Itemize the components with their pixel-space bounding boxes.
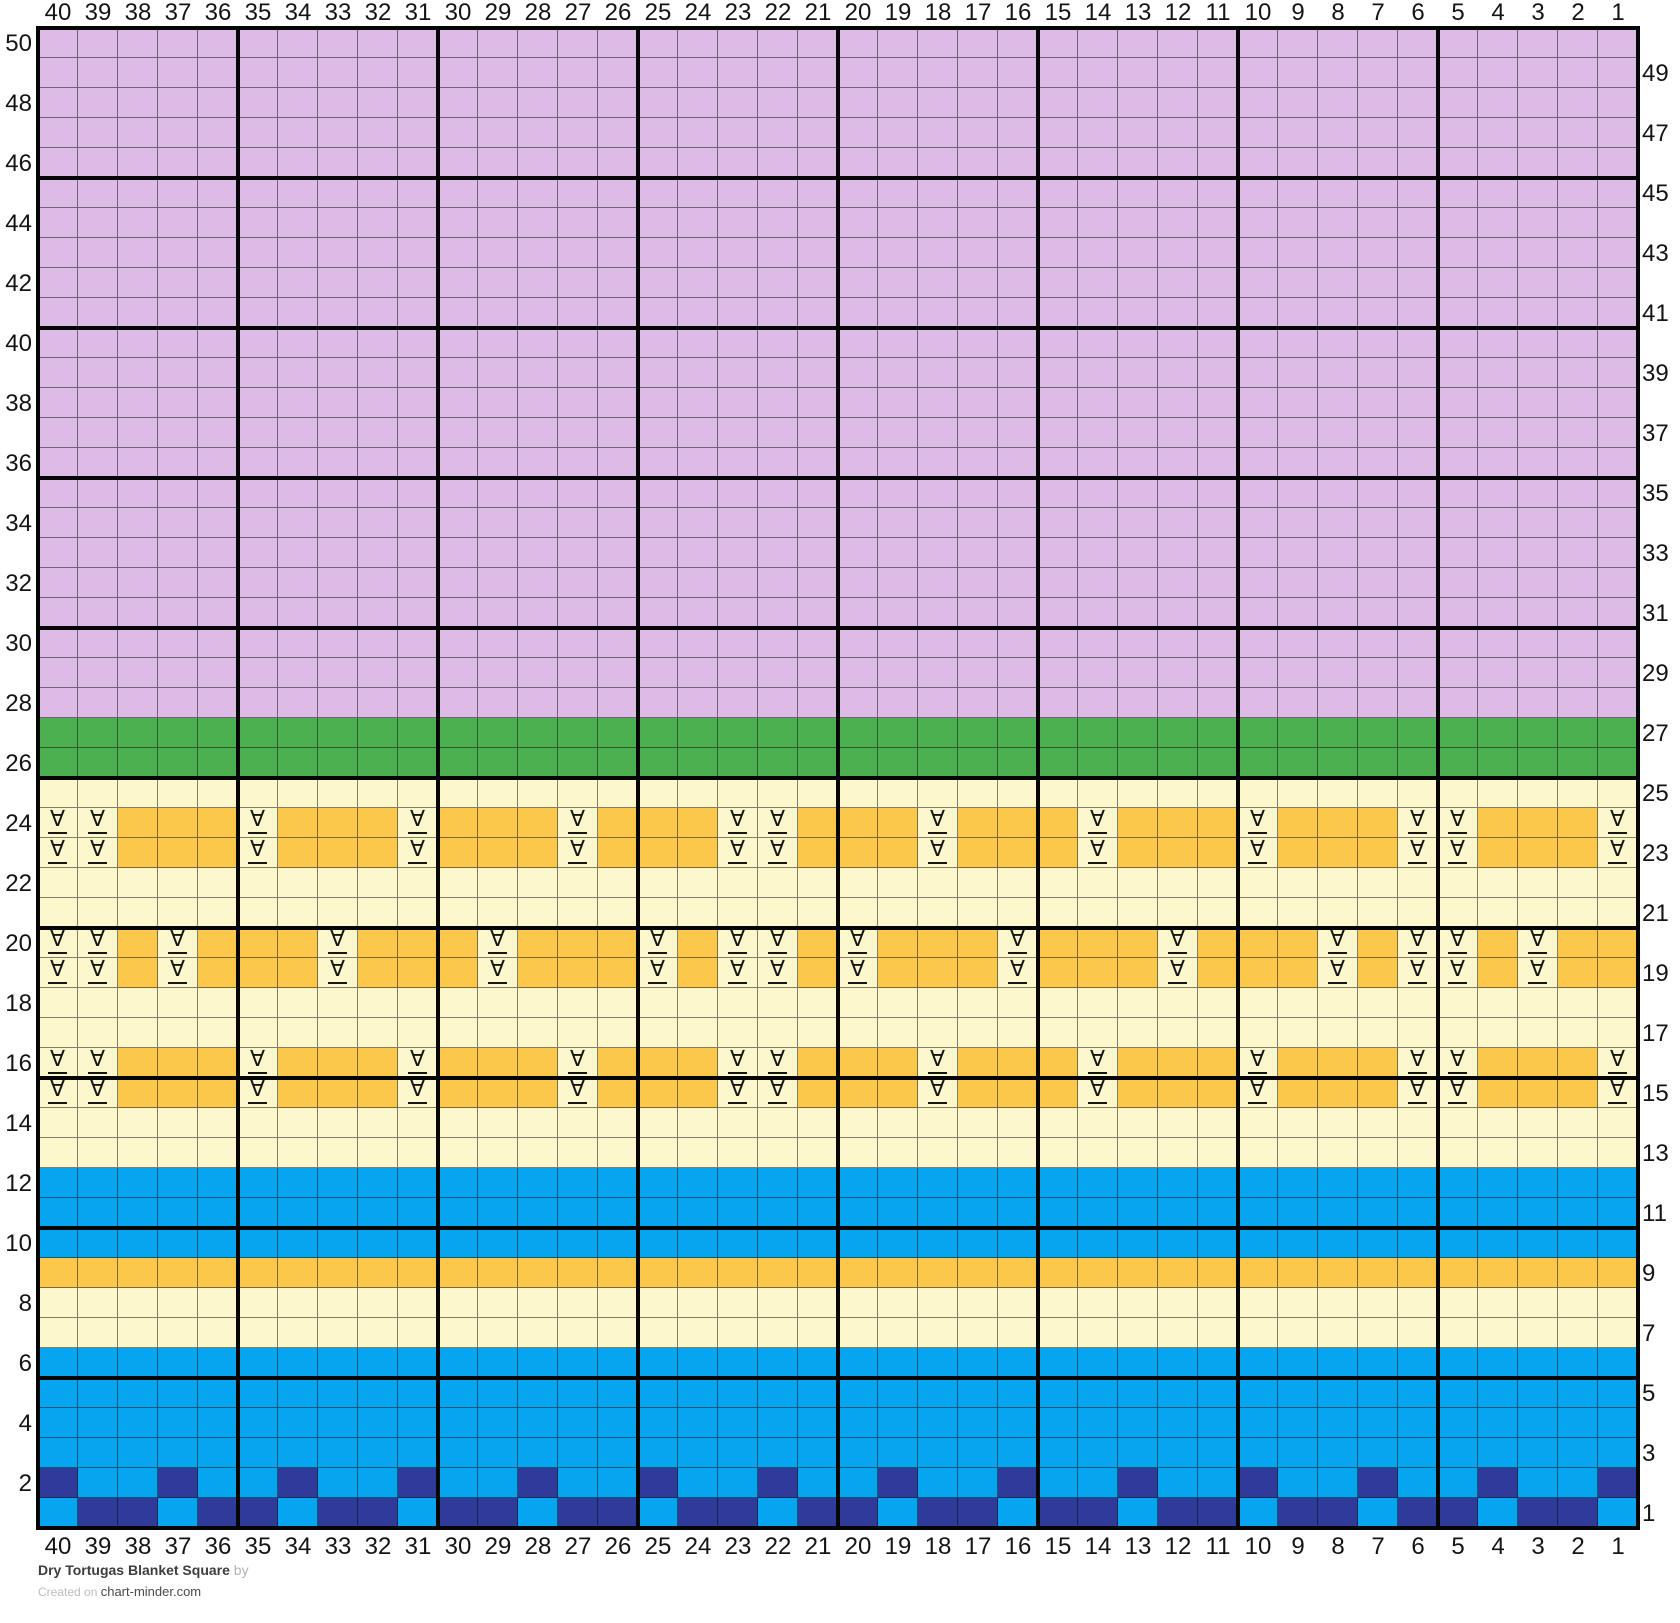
grid-cell[interactable]: [1478, 1018, 1518, 1048]
grid-cell[interactable]: [1438, 568, 1478, 598]
grid-cell[interactable]: [1158, 568, 1198, 598]
grid-cell[interactable]: [158, 778, 198, 808]
grid-cell[interactable]: [1078, 868, 1118, 898]
grid-cell[interactable]: [438, 898, 478, 928]
grid-cell[interactable]: [1118, 88, 1158, 118]
grid-cell[interactable]: [998, 1168, 1038, 1198]
grid-cell[interactable]: [798, 658, 838, 688]
grid-cell[interactable]: [78, 208, 118, 238]
grid-cell[interactable]: [438, 718, 478, 748]
grid-cell[interactable]: [1478, 688, 1518, 718]
grid-cell[interactable]: [918, 1498, 958, 1528]
grid-cell[interactable]: [798, 448, 838, 478]
grid-cell[interactable]: [1518, 868, 1558, 898]
grid-cell[interactable]: [1118, 418, 1158, 448]
grid-cell[interactable]: [118, 1468, 158, 1498]
grid-cell[interactable]: [558, 1318, 598, 1348]
grid-cell[interactable]: [1398, 478, 1438, 508]
grid-cell[interactable]: [638, 1498, 678, 1528]
grid-cell[interactable]: [1518, 328, 1558, 358]
grid-cell[interactable]: [1078, 598, 1118, 628]
grid-cell[interactable]: [118, 148, 158, 178]
grid-cell[interactable]: [1438, 1288, 1478, 1318]
grid-cell[interactable]: [1318, 508, 1358, 538]
grid-cell[interactable]: [318, 1228, 358, 1258]
grid-cell[interactable]: [958, 928, 998, 958]
grid-cell[interactable]: [158, 1168, 198, 1198]
grid-cell[interactable]: [1478, 1228, 1518, 1258]
grid-cell[interactable]: [678, 1198, 718, 1228]
grid-cell[interactable]: [278, 1288, 318, 1318]
grid-cell[interactable]: [1358, 178, 1398, 208]
grid-cell[interactable]: [678, 958, 718, 988]
grid-cell[interactable]: ∀: [1078, 808, 1118, 838]
grid-cell[interactable]: [1278, 1498, 1318, 1528]
grid-cell[interactable]: [278, 868, 318, 898]
grid-cell[interactable]: [1118, 1198, 1158, 1228]
grid-cell[interactable]: [998, 508, 1038, 538]
grid-cell[interactable]: [1478, 658, 1518, 688]
grid-cell[interactable]: [998, 1438, 1038, 1468]
grid-cell[interactable]: [1478, 1318, 1518, 1348]
grid-cell[interactable]: [278, 1348, 318, 1378]
grid-cell[interactable]: [1358, 1048, 1398, 1078]
grid-cell[interactable]: [318, 58, 358, 88]
grid-cell[interactable]: [1598, 1378, 1638, 1408]
grid-cell[interactable]: [1158, 1258, 1198, 1288]
grid-cell[interactable]: [198, 298, 238, 328]
grid-cell[interactable]: [998, 1408, 1038, 1438]
grid-cell[interactable]: [1238, 1288, 1278, 1318]
grid-cell[interactable]: [1198, 568, 1238, 598]
grid-cell[interactable]: [638, 568, 678, 598]
grid-cell[interactable]: [918, 538, 958, 568]
grid-cell[interactable]: [398, 238, 438, 268]
grid-cell[interactable]: [638, 718, 678, 748]
grid-cell[interactable]: [838, 1348, 878, 1378]
grid-cell[interactable]: [598, 1408, 638, 1438]
grid-cell[interactable]: [1278, 268, 1318, 298]
grid-cell[interactable]: [1518, 748, 1558, 778]
grid-cell[interactable]: [118, 1168, 158, 1198]
grid-cell[interactable]: [1198, 58, 1238, 88]
grid-cell[interactable]: [318, 1498, 358, 1528]
grid-cell[interactable]: [1398, 1348, 1438, 1378]
grid-cell[interactable]: [198, 1288, 238, 1318]
grid-cell[interactable]: [1358, 298, 1398, 328]
grid-cell[interactable]: [1478, 1348, 1518, 1378]
grid-cell[interactable]: [1478, 1378, 1518, 1408]
grid-cell[interactable]: [358, 658, 398, 688]
grid-cell[interactable]: [638, 208, 678, 238]
grid-cell[interactable]: ∀: [1238, 838, 1278, 868]
grid-cell[interactable]: ∀: [758, 838, 798, 868]
grid-cell[interactable]: [918, 1198, 958, 1228]
grid-cell[interactable]: [1198, 808, 1238, 838]
grid-cell[interactable]: [1478, 118, 1518, 148]
grid-cell[interactable]: [278, 418, 318, 448]
grid-cell[interactable]: [1518, 298, 1558, 328]
grid-cell[interactable]: [1398, 58, 1438, 88]
grid-cell[interactable]: [1238, 1438, 1278, 1468]
grid-cell[interactable]: [278, 238, 318, 268]
grid-cell[interactable]: [838, 1498, 878, 1528]
grid-cell[interactable]: [1398, 358, 1438, 388]
grid-cell[interactable]: [38, 778, 78, 808]
grid-cell[interactable]: [1358, 568, 1398, 598]
grid-cell[interactable]: [958, 1078, 998, 1108]
grid-cell[interactable]: [1118, 1318, 1158, 1348]
grid-cell[interactable]: [838, 868, 878, 898]
grid-cell[interactable]: [878, 1138, 918, 1168]
grid-cell[interactable]: ∀: [1318, 928, 1358, 958]
grid-cell[interactable]: [278, 1138, 318, 1168]
grid-cell[interactable]: [158, 898, 198, 928]
grid-cell[interactable]: [438, 448, 478, 478]
grid-cell[interactable]: [358, 298, 398, 328]
grid-cell[interactable]: [758, 658, 798, 688]
grid-cell[interactable]: [1158, 448, 1198, 478]
grid-cell[interactable]: [918, 238, 958, 268]
grid-cell[interactable]: [1318, 58, 1358, 88]
grid-cell[interactable]: [918, 1168, 958, 1198]
grid-cell[interactable]: [198, 118, 238, 148]
grid-cell[interactable]: [358, 358, 398, 388]
grid-cell[interactable]: [958, 1198, 998, 1228]
grid-cell[interactable]: [1438, 1408, 1478, 1438]
grid-cell[interactable]: [38, 628, 78, 658]
grid-cell[interactable]: [1318, 868, 1358, 898]
grid-cell[interactable]: [318, 178, 358, 208]
grid-cell[interactable]: [118, 88, 158, 118]
grid-cell[interactable]: [1118, 928, 1158, 958]
grid-cell[interactable]: [1038, 808, 1078, 838]
grid-cell[interactable]: [878, 988, 918, 1018]
grid-cell[interactable]: [118, 268, 158, 298]
grid-cell[interactable]: [838, 1228, 878, 1258]
grid-cell[interactable]: [1118, 1438, 1158, 1468]
grid-cell[interactable]: [438, 1108, 478, 1138]
grid-cell[interactable]: [118, 658, 158, 688]
grid-cell[interactable]: [718, 1438, 758, 1468]
grid-cell[interactable]: [198, 1348, 238, 1378]
grid-cell[interactable]: [118, 358, 158, 388]
grid-cell[interactable]: [1278, 628, 1318, 658]
grid-cell[interactable]: [1598, 868, 1638, 898]
grid-cell[interactable]: [1358, 928, 1398, 958]
grid-cell[interactable]: ∀: [1078, 1078, 1118, 1108]
grid-cell[interactable]: [998, 778, 1038, 808]
grid-cell[interactable]: [718, 1378, 758, 1408]
grid-cell[interactable]: [198, 1498, 238, 1528]
grid-cell[interactable]: [278, 1438, 318, 1468]
grid-cell[interactable]: [1318, 718, 1358, 748]
grid-cell[interactable]: [878, 58, 918, 88]
grid-cell[interactable]: [598, 1108, 638, 1138]
grid-cell[interactable]: [158, 838, 198, 868]
grid-cell[interactable]: [1278, 1438, 1318, 1468]
grid-cell[interactable]: [1478, 868, 1518, 898]
grid-cell[interactable]: [958, 1378, 998, 1408]
grid-cell[interactable]: [838, 778, 878, 808]
grid-cell[interactable]: [438, 988, 478, 1018]
grid-cell[interactable]: [198, 718, 238, 748]
grid-cell[interactable]: [1158, 1018, 1198, 1048]
grid-cell[interactable]: [838, 268, 878, 298]
grid-cell[interactable]: [1038, 1108, 1078, 1138]
grid-cell[interactable]: [878, 508, 918, 538]
grid-cell[interactable]: [1158, 88, 1198, 118]
grid-cell[interactable]: [758, 1018, 798, 1048]
grid-cell[interactable]: [158, 628, 198, 658]
grid-cell[interactable]: [238, 208, 278, 238]
grid-cell[interactable]: ∀: [758, 1078, 798, 1108]
grid-cell[interactable]: [758, 508, 798, 538]
grid-cell[interactable]: [998, 148, 1038, 178]
grid-cell[interactable]: [1198, 238, 1238, 268]
grid-cell[interactable]: [1518, 88, 1558, 118]
grid-cell[interactable]: [1318, 1408, 1358, 1438]
grid-cell[interactable]: ∀: [1238, 1078, 1278, 1108]
grid-cell[interactable]: [1478, 1258, 1518, 1288]
grid-cell[interactable]: [118, 838, 158, 868]
grid-cell[interactable]: [878, 1198, 918, 1228]
grid-cell[interactable]: [598, 688, 638, 718]
grid-cell[interactable]: [158, 988, 198, 1018]
grid-cell[interactable]: [798, 418, 838, 448]
grid-cell[interactable]: [358, 688, 398, 718]
grid-cell[interactable]: [678, 568, 718, 598]
grid-cell[interactable]: ∀: [1598, 1078, 1638, 1108]
grid-cell[interactable]: [878, 1408, 918, 1438]
grid-cell[interactable]: [278, 298, 318, 328]
grid-cell[interactable]: [398, 868, 438, 898]
grid-cell[interactable]: [1238, 538, 1278, 568]
grid-cell[interactable]: [118, 448, 158, 478]
grid-cell[interactable]: [518, 568, 558, 598]
grid-cell[interactable]: [1398, 688, 1438, 718]
grid-cell[interactable]: [1238, 898, 1278, 928]
grid-cell[interactable]: [1078, 1258, 1118, 1288]
grid-cell[interactable]: [798, 628, 838, 658]
grid-cell[interactable]: [798, 1198, 838, 1228]
grid-cell[interactable]: [878, 838, 918, 868]
grid-cell[interactable]: [598, 1138, 638, 1168]
grid-cell[interactable]: [1118, 718, 1158, 748]
grid-cell[interactable]: [1558, 1048, 1598, 1078]
grid-cell[interactable]: [358, 448, 398, 478]
grid-cell[interactable]: [718, 298, 758, 328]
grid-cell[interactable]: [718, 478, 758, 508]
grid-cell[interactable]: [1118, 1348, 1158, 1378]
grid-cell[interactable]: [918, 1468, 958, 1498]
grid-cell[interactable]: [398, 1258, 438, 1288]
grid-cell[interactable]: [558, 238, 598, 268]
grid-cell[interactable]: [638, 358, 678, 388]
grid-cell[interactable]: [78, 628, 118, 658]
grid-cell[interactable]: [1318, 388, 1358, 418]
grid-cell[interactable]: [518, 1468, 558, 1498]
grid-cell[interactable]: [1318, 478, 1358, 508]
grid-cell[interactable]: [598, 658, 638, 688]
grid-cell[interactable]: [518, 748, 558, 778]
grid-cell[interactable]: ∀: [1078, 838, 1118, 868]
grid-cell[interactable]: [838, 118, 878, 148]
grid-cell[interactable]: [478, 898, 518, 928]
grid-cell[interactable]: [1238, 358, 1278, 388]
grid-cell[interactable]: [1278, 298, 1318, 328]
grid-cell[interactable]: [1118, 868, 1158, 898]
grid-cell[interactable]: [238, 1498, 278, 1528]
grid-cell[interactable]: [1358, 1348, 1398, 1378]
grid-cell[interactable]: ∀: [1438, 808, 1478, 838]
grid-cell[interactable]: [918, 1138, 958, 1168]
grid-cell[interactable]: ∀: [1398, 928, 1438, 958]
grid-cell[interactable]: [438, 1048, 478, 1078]
grid-cell[interactable]: [878, 418, 918, 448]
grid-cell[interactable]: ∀: [38, 958, 78, 988]
grid-cell[interactable]: [558, 298, 598, 328]
grid-cell[interactable]: [1038, 1378, 1078, 1408]
grid-cell[interactable]: [558, 1108, 598, 1138]
grid-cell[interactable]: [38, 1168, 78, 1198]
grid-cell[interactable]: [878, 1078, 918, 1108]
grid-cell[interactable]: [1518, 1018, 1558, 1048]
grid-cell[interactable]: [398, 208, 438, 238]
grid-cell[interactable]: [1278, 238, 1318, 268]
grid-cell[interactable]: [198, 1258, 238, 1288]
grid-cell[interactable]: [518, 388, 558, 418]
grid-cell[interactable]: [838, 1288, 878, 1318]
grid-cell[interactable]: [318, 898, 358, 928]
grid-cell[interactable]: [1438, 88, 1478, 118]
grid-cell[interactable]: [918, 628, 958, 658]
grid-cell[interactable]: [838, 1318, 878, 1348]
grid-cell[interactable]: [78, 898, 118, 928]
grid-cell[interactable]: [1318, 1318, 1358, 1348]
grid-cell[interactable]: [678, 208, 718, 238]
grid-cell[interactable]: [78, 118, 118, 148]
grid-cell[interactable]: [1358, 1378, 1398, 1408]
grid-cell[interactable]: [1558, 808, 1598, 838]
grid-cell[interactable]: [718, 28, 758, 58]
grid-cell[interactable]: [1118, 208, 1158, 238]
grid-cell[interactable]: [718, 1168, 758, 1198]
grid-cell[interactable]: ∀: [158, 958, 198, 988]
grid-cell[interactable]: [38, 178, 78, 208]
grid-cell[interactable]: [1158, 718, 1198, 748]
grid-cell[interactable]: [398, 898, 438, 928]
grid-cell[interactable]: ∀: [1518, 928, 1558, 958]
grid-cell[interactable]: [238, 388, 278, 418]
grid-cell[interactable]: [718, 418, 758, 448]
grid-cell[interactable]: [1438, 418, 1478, 448]
grid-cell[interactable]: ∀: [758, 958, 798, 988]
grid-cell[interactable]: [838, 748, 878, 778]
grid-cell[interactable]: [158, 1048, 198, 1078]
grid-cell[interactable]: [518, 808, 558, 838]
grid-cell[interactable]: [118, 328, 158, 358]
grid-cell[interactable]: [638, 628, 678, 658]
grid-cell[interactable]: [1038, 118, 1078, 148]
grid-cell[interactable]: [678, 1138, 718, 1168]
grid-cell[interactable]: [1198, 268, 1238, 298]
grid-cell[interactable]: [1118, 1378, 1158, 1408]
grid-cell[interactable]: [798, 88, 838, 118]
grid-cell[interactable]: [1598, 1228, 1638, 1258]
grid-cell[interactable]: [1318, 178, 1358, 208]
grid-cell[interactable]: [1358, 808, 1398, 838]
grid-cell[interactable]: [438, 388, 478, 418]
grid-cell[interactable]: [1438, 148, 1478, 178]
grid-cell[interactable]: [638, 148, 678, 178]
grid-cell[interactable]: [1158, 1078, 1198, 1108]
grid-cell[interactable]: ∀: [38, 1048, 78, 1078]
grid-cell[interactable]: [1158, 1408, 1198, 1438]
grid-cell[interactable]: [918, 1018, 958, 1048]
grid-cell[interactable]: [798, 1468, 838, 1498]
grid-cell[interactable]: [798, 1408, 838, 1438]
grid-cell[interactable]: [1318, 1228, 1358, 1258]
grid-cell[interactable]: [1558, 268, 1598, 298]
grid-cell[interactable]: [1398, 658, 1438, 688]
grid-cell[interactable]: [1558, 1498, 1598, 1528]
grid-cell[interactable]: [198, 1408, 238, 1438]
grid-cell[interactable]: ∀: [78, 1078, 118, 1108]
grid-cell[interactable]: [518, 1438, 558, 1468]
grid-cell[interactable]: [798, 58, 838, 88]
grid-cell[interactable]: [1598, 1348, 1638, 1378]
grid-cell[interactable]: [358, 1168, 398, 1198]
grid-cell[interactable]: [1358, 1288, 1398, 1318]
grid-cell[interactable]: [638, 748, 678, 778]
grid-cell[interactable]: [1478, 448, 1518, 478]
grid-cell[interactable]: [398, 358, 438, 388]
grid-cell[interactable]: [638, 1318, 678, 1348]
grid-cell[interactable]: [638, 448, 678, 478]
grid-cell[interactable]: [638, 268, 678, 298]
grid-cell[interactable]: [358, 1348, 398, 1378]
grid-cell[interactable]: [398, 1348, 438, 1378]
grid-cell[interactable]: [1158, 208, 1198, 238]
grid-cell[interactable]: [638, 868, 678, 898]
grid-cell[interactable]: [838, 1138, 878, 1168]
grid-cell[interactable]: [158, 88, 198, 118]
grid-cell[interactable]: [398, 178, 438, 208]
grid-cell[interactable]: [278, 808, 318, 838]
grid-cell[interactable]: [478, 658, 518, 688]
grid-cell[interactable]: [38, 148, 78, 178]
grid-cell[interactable]: [438, 1378, 478, 1408]
grid-cell[interactable]: [1238, 238, 1278, 268]
grid-cell[interactable]: [758, 598, 798, 628]
grid-cell[interactable]: [1358, 688, 1398, 718]
grid-cell[interactable]: [918, 328, 958, 358]
grid-cell[interactable]: [1278, 928, 1318, 958]
grid-cell[interactable]: [478, 388, 518, 418]
grid-cell[interactable]: ∀: [398, 1048, 438, 1078]
grid-cell[interactable]: [678, 328, 718, 358]
grid-cell[interactable]: [118, 418, 158, 448]
grid-cell[interactable]: [438, 1198, 478, 1228]
grid-cell[interactable]: [1598, 418, 1638, 448]
grid-cell[interactable]: [1558, 508, 1598, 538]
grid-cell[interactable]: [758, 238, 798, 268]
grid-cell[interactable]: [278, 478, 318, 508]
grid-cell[interactable]: [318, 1198, 358, 1228]
grid-cell[interactable]: [1078, 1468, 1118, 1498]
grid-cell[interactable]: [1518, 1168, 1558, 1198]
